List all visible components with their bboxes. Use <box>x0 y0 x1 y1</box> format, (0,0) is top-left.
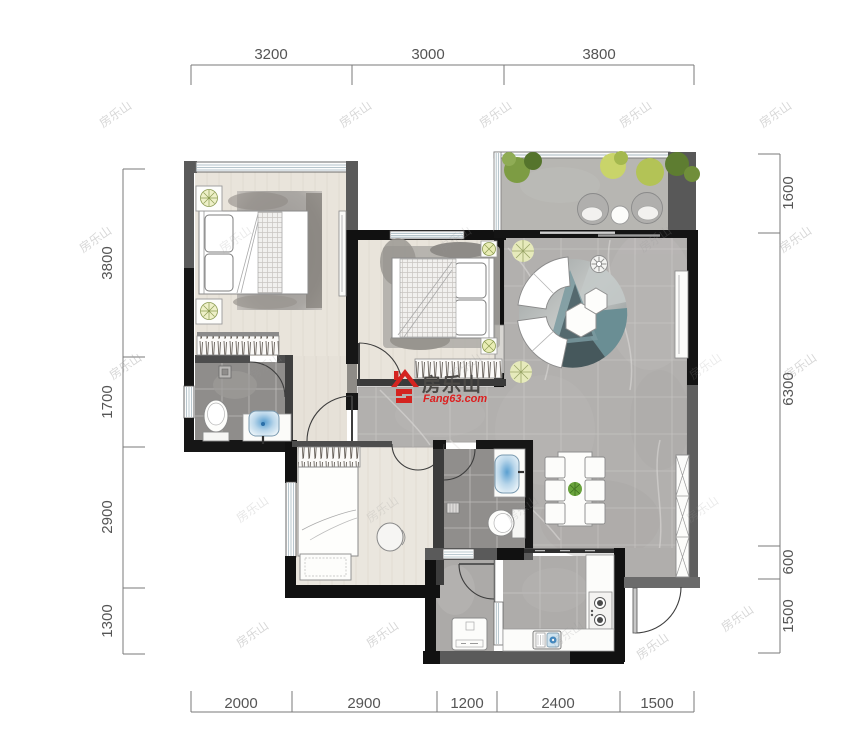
svg-text:2900: 2900 <box>99 500 116 533</box>
svg-text:3800: 3800 <box>582 46 615 63</box>
svg-text:3200: 3200 <box>254 46 287 63</box>
svg-text:1500: 1500 <box>780 599 797 632</box>
svg-text:2900: 2900 <box>347 695 380 712</box>
svg-text:1200: 1200 <box>450 695 483 712</box>
svg-text:1600: 1600 <box>780 176 797 209</box>
svg-text:1500: 1500 <box>640 695 673 712</box>
svg-text:2400: 2400 <box>541 695 574 712</box>
svg-text:3000: 3000 <box>411 46 444 63</box>
svg-text:600: 600 <box>780 549 797 574</box>
svg-text:Fang63.com: Fang63.com <box>423 393 487 405</box>
svg-text:1300: 1300 <box>99 604 116 637</box>
svg-text:1700: 1700 <box>99 385 116 418</box>
svg-text:2000: 2000 <box>224 695 257 712</box>
svg-text:3800: 3800 <box>99 246 116 279</box>
